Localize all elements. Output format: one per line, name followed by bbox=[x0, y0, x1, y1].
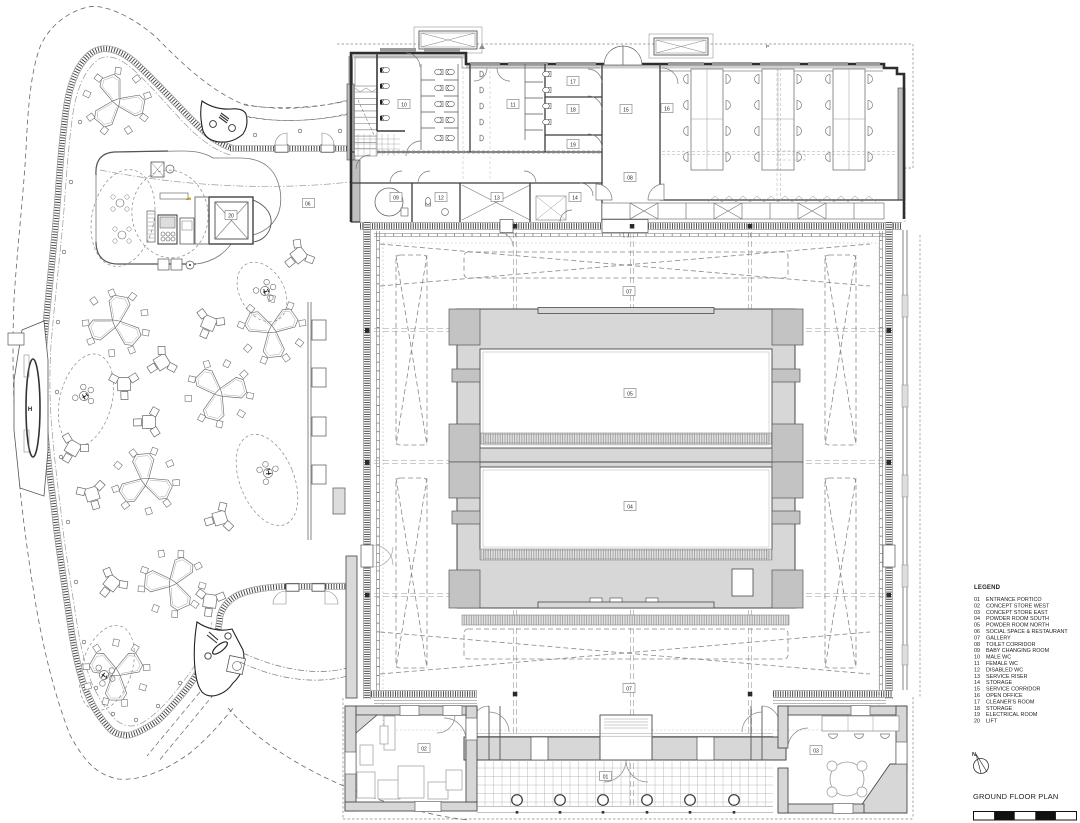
svg-text:17: 17 bbox=[570, 80, 576, 86]
svg-text:14: 14 bbox=[974, 680, 980, 686]
svg-text:15: 15 bbox=[623, 108, 629, 114]
svg-text:05: 05 bbox=[627, 392, 633, 398]
svg-text:14: 14 bbox=[572, 196, 578, 202]
svg-text:06: 06 bbox=[974, 629, 980, 635]
svg-text:03: 03 bbox=[813, 749, 819, 755]
svg-text:CLEANER'S ROOM: CLEANER'S ROOM bbox=[986, 699, 1035, 705]
svg-text:13: 13 bbox=[974, 674, 980, 680]
svg-text:H: H bbox=[28, 407, 32, 413]
svg-text:11: 11 bbox=[974, 661, 980, 667]
svg-text:SERVICE RISER: SERVICE RISER bbox=[986, 674, 1028, 680]
svg-text:20: 20 bbox=[974, 719, 980, 725]
svg-text:POWDER ROOM SOUTH: POWDER ROOM SOUTH bbox=[986, 616, 1049, 622]
svg-text:16: 16 bbox=[664, 107, 670, 113]
svg-text:10: 10 bbox=[974, 655, 980, 661]
svg-text:11: 11 bbox=[510, 103, 515, 109]
svg-text:OPEN OFFICE: OPEN OFFICE bbox=[986, 693, 1023, 699]
svg-text:02: 02 bbox=[421, 747, 427, 753]
svg-text:15: 15 bbox=[974, 687, 980, 693]
svg-text:STORAGE: STORAGE bbox=[986, 706, 1013, 712]
svg-text:18: 18 bbox=[570, 108, 576, 114]
svg-text:P: P bbox=[766, 44, 769, 49]
svg-text:GROUND FLOOR PLAN: GROUND FLOOR PLAN bbox=[973, 792, 1058, 801]
svg-text:12: 12 bbox=[974, 667, 980, 673]
svg-text:ENTRANCE PORTICO: ENTRANCE PORTICO bbox=[986, 597, 1042, 603]
svg-text:19: 19 bbox=[570, 143, 576, 149]
svg-text:07: 07 bbox=[626, 687, 632, 693]
svg-text:DISABLED WC: DISABLED WC bbox=[986, 667, 1023, 673]
svg-text:01: 01 bbox=[974, 597, 980, 603]
svg-text:GALLERY: GALLERY bbox=[986, 635, 1011, 641]
svg-text:19: 19 bbox=[974, 712, 980, 718]
svg-text:SOCIAL SPACE & RESTAURANT: SOCIAL SPACE & RESTAURANT bbox=[986, 629, 1068, 635]
svg-text:06: 06 bbox=[305, 202, 311, 208]
svg-text:20: 20 bbox=[228, 214, 234, 220]
svg-text:BABY CHANGING ROOM: BABY CHANGING ROOM bbox=[986, 648, 1050, 654]
svg-text:10: 10 bbox=[401, 103, 407, 109]
svg-text:LEGEND: LEGEND bbox=[974, 585, 1001, 591]
svg-text:POWDER ROOM NORTH: POWDER ROOM NORTH bbox=[986, 623, 1049, 629]
svg-text:MALE WC: MALE WC bbox=[986, 655, 1011, 661]
svg-text:17: 17 bbox=[974, 699, 980, 705]
svg-text:07: 07 bbox=[974, 635, 980, 641]
svg-text:08: 08 bbox=[974, 642, 980, 648]
svg-text:18: 18 bbox=[974, 706, 980, 712]
svg-text:CONCEPT STORE EAST: CONCEPT STORE EAST bbox=[986, 610, 1049, 616]
svg-text:13: 13 bbox=[494, 196, 500, 202]
svg-text:01: 01 bbox=[603, 775, 609, 781]
svg-text:16: 16 bbox=[974, 693, 980, 699]
svg-text:SERVICE CORRIDOR: SERVICE CORRIDOR bbox=[986, 687, 1041, 693]
svg-text:TOILET CORRIDOR: TOILET CORRIDOR bbox=[986, 642, 1036, 648]
svg-text:LIFT: LIFT bbox=[986, 719, 998, 725]
svg-text:CONCEPT STORE WEST: CONCEPT STORE WEST bbox=[986, 603, 1050, 609]
svg-text:09: 09 bbox=[974, 648, 980, 654]
svg-text:08: 08 bbox=[627, 176, 633, 182]
svg-text:04: 04 bbox=[627, 505, 633, 511]
svg-text:09: 09 bbox=[393, 196, 399, 202]
svg-text:03: 03 bbox=[974, 610, 980, 616]
svg-text:FEMALE WC: FEMALE WC bbox=[986, 661, 1018, 667]
svg-text:04: 04 bbox=[974, 616, 980, 622]
svg-text:N: N bbox=[972, 752, 976, 758]
svg-text:12: 12 bbox=[438, 196, 444, 202]
svg-text:05: 05 bbox=[974, 623, 980, 629]
svg-text:STORAGE: STORAGE bbox=[986, 680, 1013, 686]
svg-text:02: 02 bbox=[974, 603, 980, 609]
svg-text:07: 07 bbox=[626, 290, 632, 296]
svg-text:ELECTRICAL ROOM: ELECTRICAL ROOM bbox=[986, 712, 1038, 718]
